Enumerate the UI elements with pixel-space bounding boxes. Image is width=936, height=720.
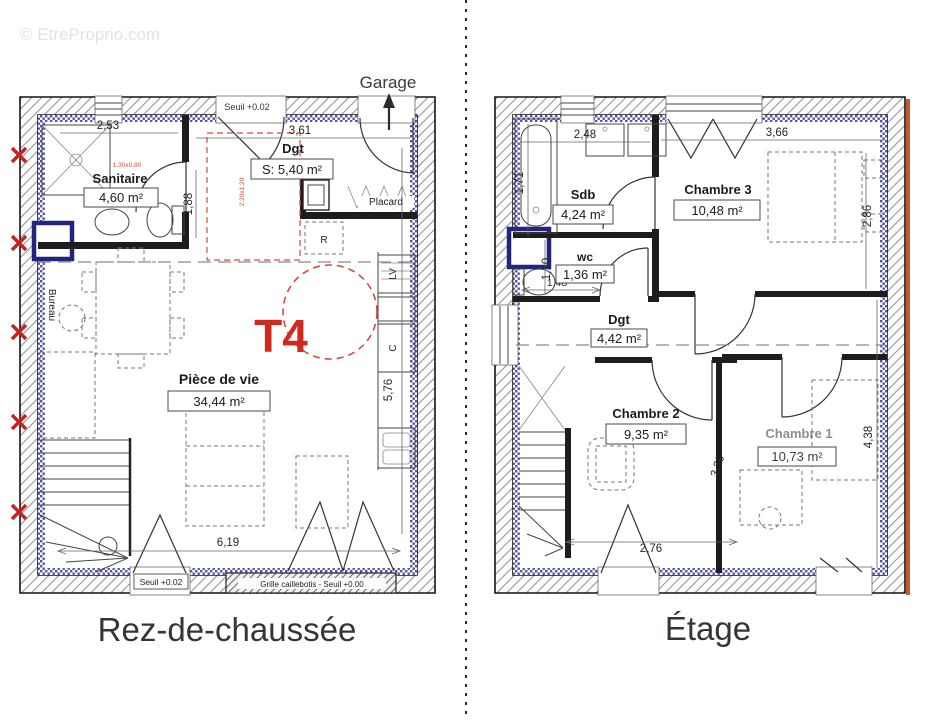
room-wc-name: wc	[576, 250, 593, 264]
red-note-dgt: 2.20x1.20	[239, 177, 246, 206]
dim-kitchen-height: 5,76	[383, 379, 395, 401]
dim-chambre1-height: 4,38	[863, 426, 875, 448]
red-note-shower: 1.30x0.80	[113, 162, 142, 169]
room-wc-area: 1,36 m²	[563, 267, 608, 282]
type-t4-label: T4	[254, 310, 308, 362]
seuil-top-label: Seuil +0.02	[224, 102, 269, 112]
window-box-left	[34, 223, 72, 259]
dim-chambre3-height: 2,86	[862, 205, 874, 227]
grille-label: Grille caillebotis - Seuil +0.00	[260, 580, 364, 589]
cooker-label: C	[388, 344, 399, 351]
ground-floor-caption: Rez-de-chaussée	[98, 611, 357, 648]
dishwasher-label: LV	[388, 268, 399, 280]
room-placard-name: Placard	[369, 197, 403, 208]
room-sanitaire-name: Sanitaire	[93, 171, 148, 186]
dim-sanitaire-width: 2,53	[97, 120, 119, 132]
room-bureau-name: Bureau	[46, 289, 57, 321]
dim-chambre3-width: 3,66	[766, 127, 788, 139]
room-chambre1-name: Chambre 1	[765, 426, 832, 441]
garage-label: Garage	[360, 73, 417, 92]
dim-sanitaire-height: 1,88	[183, 193, 195, 215]
watermark: © EtreProprio.com	[20, 25, 160, 44]
room-chambre1-area: 10,73 m²	[771, 449, 823, 464]
sanitaire-window	[95, 96, 122, 123]
dim-sdb-width: 2,48	[574, 129, 596, 141]
seuil-bottom-label: Seuil +0.02	[140, 577, 183, 587]
room-dgt-area: 4,42 m²	[597, 331, 642, 346]
room-piece-area: 34,44 m²	[193, 394, 245, 409]
dim-entry-width: 3,61	[289, 125, 311, 137]
roof-edge-line	[906, 99, 910, 595]
room-chambre3-name: Chambre 3	[684, 182, 751, 197]
room-sdb-area: 4,24 m²	[561, 207, 606, 222]
fridge-label: R	[320, 235, 327, 246]
dim-chambre2-width: 2,76	[640, 543, 662, 555]
room-sanitaire-area: 4,60 m²	[99, 190, 144, 205]
room-chambre3-area: 10,48 m²	[691, 203, 743, 218]
dim-bath-height: 1,71	[514, 172, 526, 194]
room-dgt-name: Dgt	[608, 312, 630, 327]
stairwell-window	[492, 305, 518, 365]
floor-plan-image: © EtreProprio.com	[0, 0, 936, 720]
room-dgt-name: Dgt	[282, 141, 304, 156]
room-sdb-name: Sdb	[571, 187, 596, 202]
dim-living-width: 6,19	[217, 537, 239, 549]
room-chambre2-area: 9,35 m²	[624, 427, 669, 442]
sdb-window	[561, 96, 594, 123]
room-chambre2-name: Chambre 2	[612, 406, 679, 421]
room-dgt-area: S: 5,40 m²	[262, 162, 323, 177]
upper-floor-caption: Étage	[665, 610, 751, 647]
water-heater	[303, 180, 329, 210]
room-piece-name: Pièce de vie	[179, 371, 259, 387]
